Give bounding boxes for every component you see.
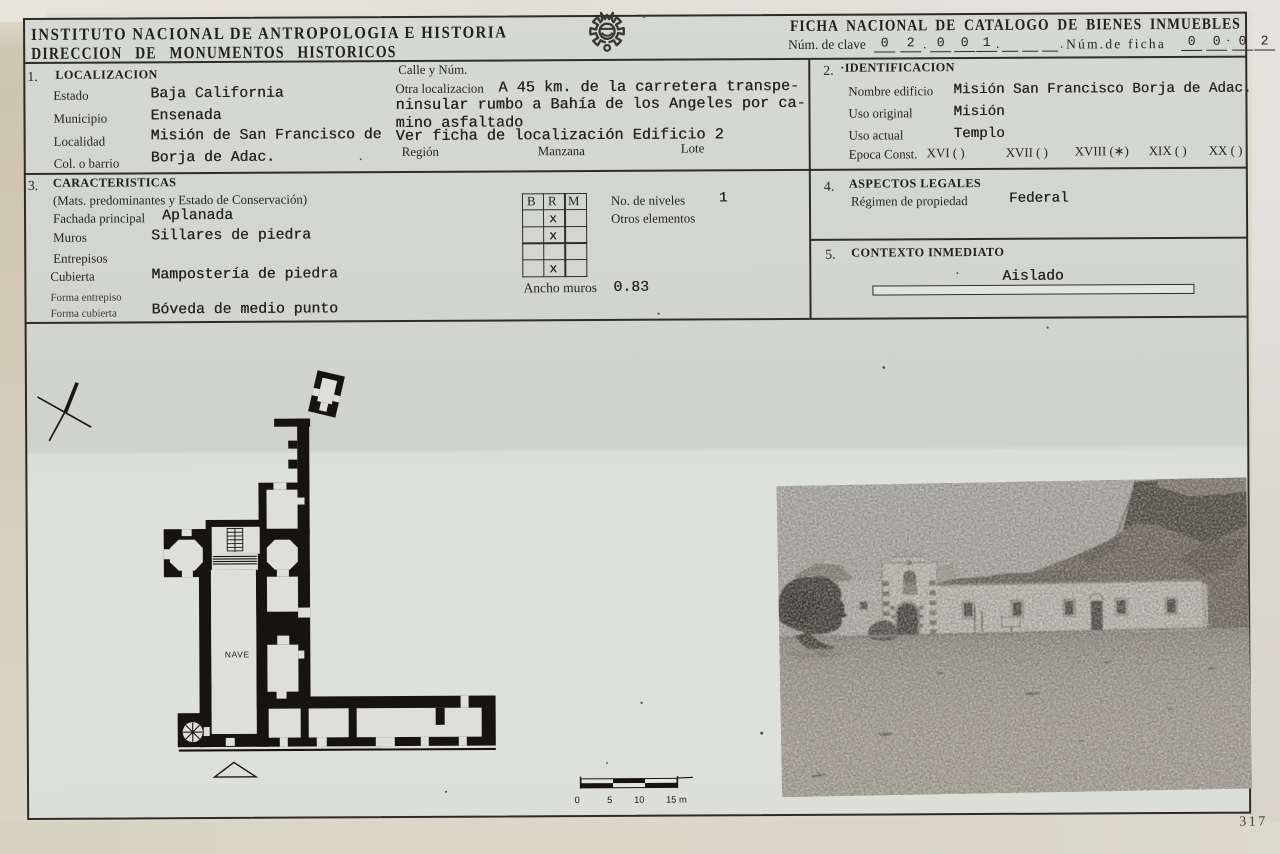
- svg-text:15 m: 15 m: [666, 795, 687, 805]
- svg-text:NAVE: NAVE: [225, 649, 250, 659]
- svg-text:0: 0: [575, 795, 580, 805]
- svg-text:10: 10: [634, 795, 644, 805]
- svg-text:5: 5: [607, 795, 612, 805]
